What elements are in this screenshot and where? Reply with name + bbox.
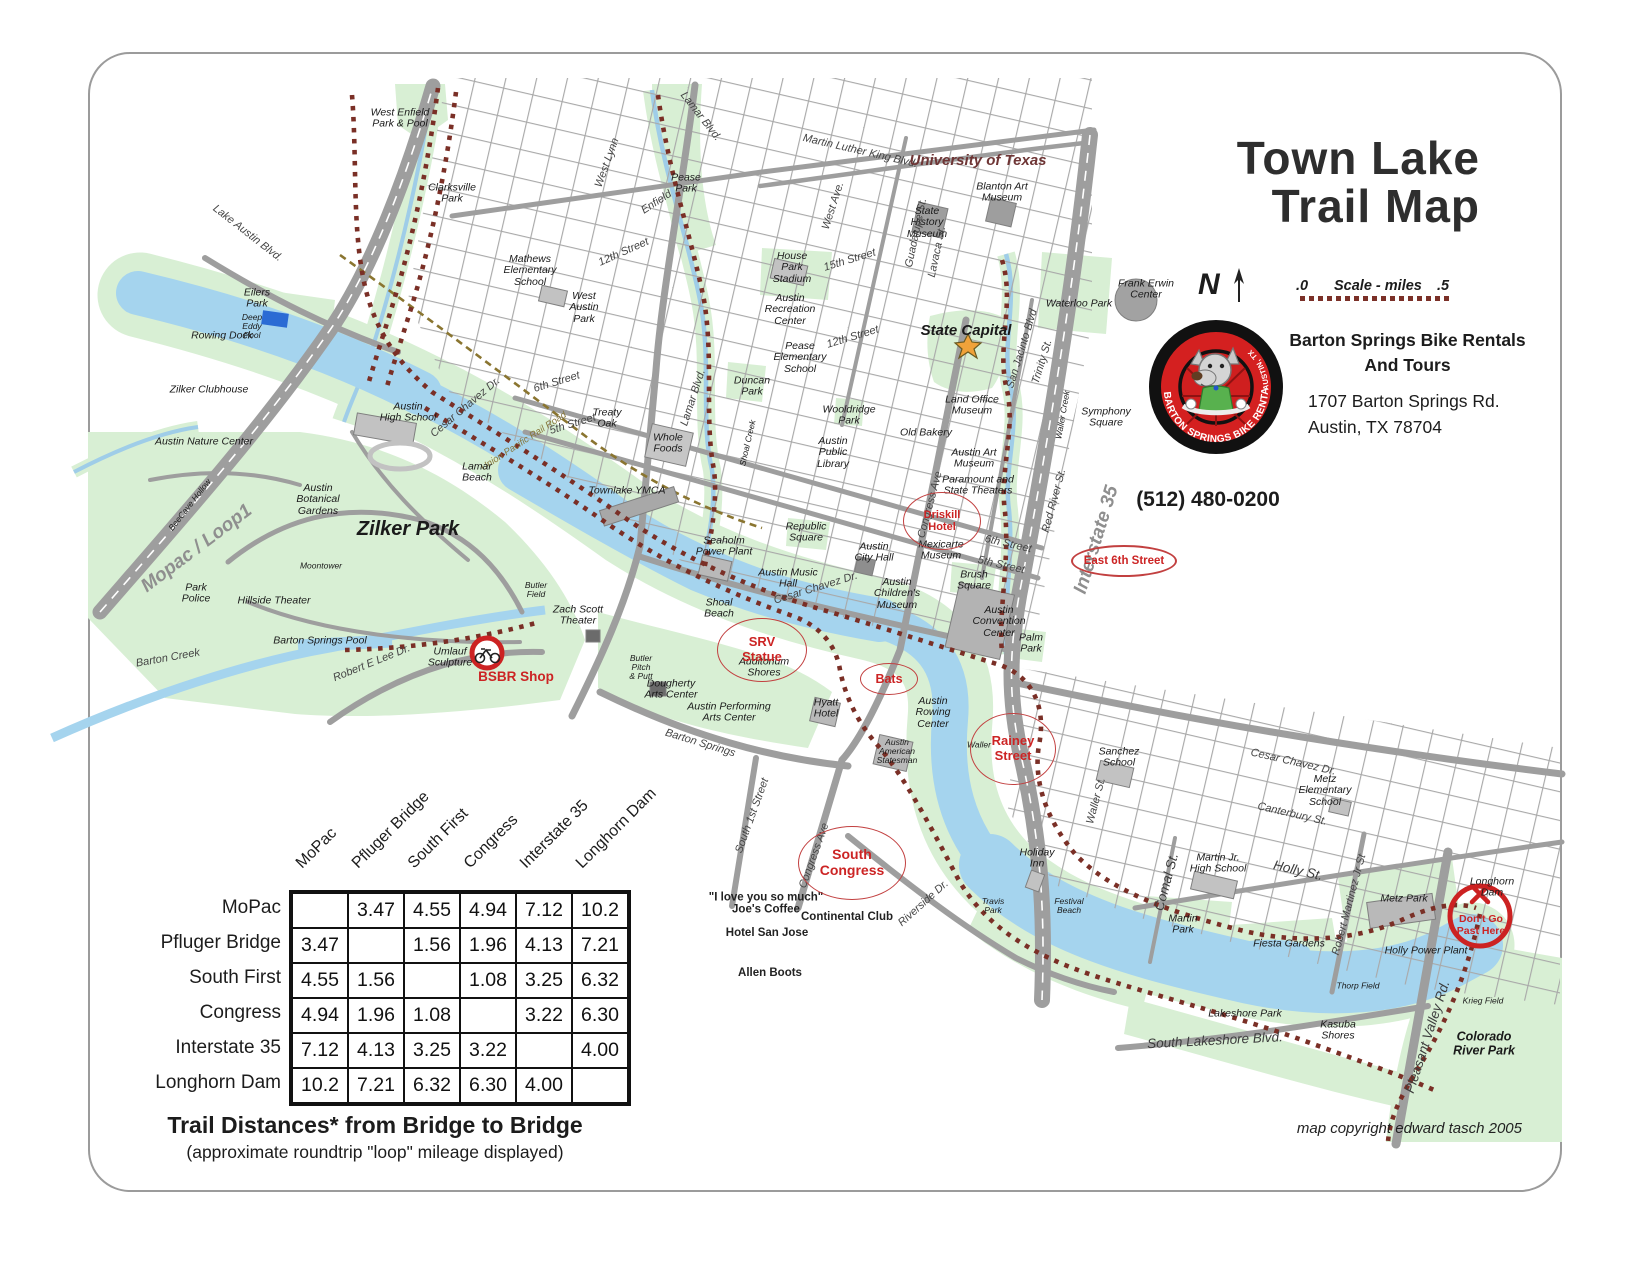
distance-cell: 7.12 bbox=[516, 893, 572, 928]
title-line1: Town Lake bbox=[1155, 134, 1480, 182]
distance-cell: 4.55 bbox=[404, 893, 460, 928]
copyright-text: map copyright edward tasch 2005 bbox=[1180, 1120, 1522, 1137]
scale-start: .0 bbox=[1296, 278, 1308, 294]
distance-row-header: Interstate 35 bbox=[129, 1037, 281, 1059]
distance-cell: 3.47 bbox=[292, 928, 348, 963]
distance-cell bbox=[572, 1068, 628, 1103]
distance-row-header: MoPac bbox=[129, 897, 281, 919]
town-lake-trail-map-page: West Enfield Park & PoolClarksville Park… bbox=[0, 0, 1650, 1275]
bsbr-shop-label: BSBR Shop bbox=[471, 670, 561, 685]
distance-cell: 4.00 bbox=[572, 1033, 628, 1068]
distance-cell: 3.25 bbox=[404, 1033, 460, 1068]
distance-cell: 3.25 bbox=[516, 963, 572, 998]
distance-row-header: South First bbox=[129, 967, 281, 989]
distance-cell bbox=[460, 998, 516, 1033]
distance-cell: 6.30 bbox=[572, 998, 628, 1033]
distance-cell: 4.94 bbox=[292, 998, 348, 1033]
distance-cell: 3.22 bbox=[460, 1033, 516, 1068]
bike-shop-marker-icon bbox=[472, 638, 502, 668]
distance-cell: 3.22 bbox=[516, 998, 572, 1033]
distance-cell bbox=[404, 963, 460, 998]
scale-label: Scale - miles bbox=[1334, 278, 1422, 294]
barton-springs-bike-rental-logo: BARTON SPRINGS BIKE RENTAL AUSTIN, TX bbox=[1147, 318, 1285, 456]
distance-cell: 4.94 bbox=[460, 893, 516, 928]
page-title: Town Lake Trail Map bbox=[1155, 134, 1480, 231]
scale-bar bbox=[1300, 296, 1452, 301]
business-address-line2: Austin, TX 78704 bbox=[1308, 414, 1500, 440]
distance-row-header: Congress bbox=[129, 1002, 281, 1024]
distance-cell: 1.56 bbox=[404, 928, 460, 963]
distance-cell: 3.47 bbox=[348, 893, 404, 928]
distance-cell: 6.32 bbox=[404, 1068, 460, 1103]
distance-cell: 1.08 bbox=[404, 998, 460, 1033]
dont-go-past-here-label: Don't Go Past Here bbox=[1441, 914, 1521, 937]
scale-end: .5 bbox=[1437, 278, 1449, 294]
distance-cell: 7.21 bbox=[572, 928, 628, 963]
distance-cell: 6.30 bbox=[460, 1068, 516, 1103]
distance-cell bbox=[292, 893, 348, 928]
business-address: 1707 Barton Springs Rd. Austin, TX 78704 bbox=[1308, 388, 1500, 441]
distance-grid: 3.474.554.947.1210.23.471.561.964.137.21… bbox=[289, 890, 631, 1106]
distance-table-subcaption: (approximate roundtrip "loop" mileage di… bbox=[130, 1142, 620, 1163]
business-phone: (512) 480-0200 bbox=[1108, 488, 1308, 512]
distance-cell: 1.96 bbox=[460, 928, 516, 963]
distance-cell: 1.56 bbox=[348, 963, 404, 998]
distance-cell: 7.12 bbox=[292, 1033, 348, 1068]
distance-cell: 10.2 bbox=[572, 893, 628, 928]
title-line2: Trail Map bbox=[1155, 182, 1480, 230]
distance-table-caption: Trail Distances* from Bridge to Bridge bbox=[130, 1112, 620, 1139]
business-address-line1: 1707 Barton Springs Rd. bbox=[1308, 388, 1500, 414]
distance-cell: 4.55 bbox=[292, 963, 348, 998]
north-arrow-icon bbox=[1234, 268, 1244, 302]
distance-cell: 1.96 bbox=[348, 998, 404, 1033]
distance-row-header: Longhorn Dam bbox=[129, 1072, 281, 1094]
business-name-line1: Barton Springs Bike Rentals bbox=[1285, 328, 1530, 353]
distance-cell: 1.08 bbox=[460, 963, 516, 998]
distance-cell: 4.13 bbox=[516, 928, 572, 963]
business-name: Barton Springs Bike Rentals And Tours bbox=[1285, 328, 1530, 379]
distance-cell bbox=[516, 1033, 572, 1068]
distance-cell: 7.21 bbox=[348, 1068, 404, 1103]
distance-cell bbox=[348, 928, 404, 963]
compass-north-label: N bbox=[1198, 268, 1220, 302]
business-name-line2: And Tours bbox=[1285, 353, 1530, 378]
distance-cell: 4.00 bbox=[516, 1068, 572, 1103]
distance-cell: 6.32 bbox=[572, 963, 628, 998]
distance-row-header: Pfluger Bridge bbox=[129, 932, 281, 954]
distance-cell: 4.13 bbox=[348, 1033, 404, 1068]
distance-cell: 10.2 bbox=[292, 1068, 348, 1103]
